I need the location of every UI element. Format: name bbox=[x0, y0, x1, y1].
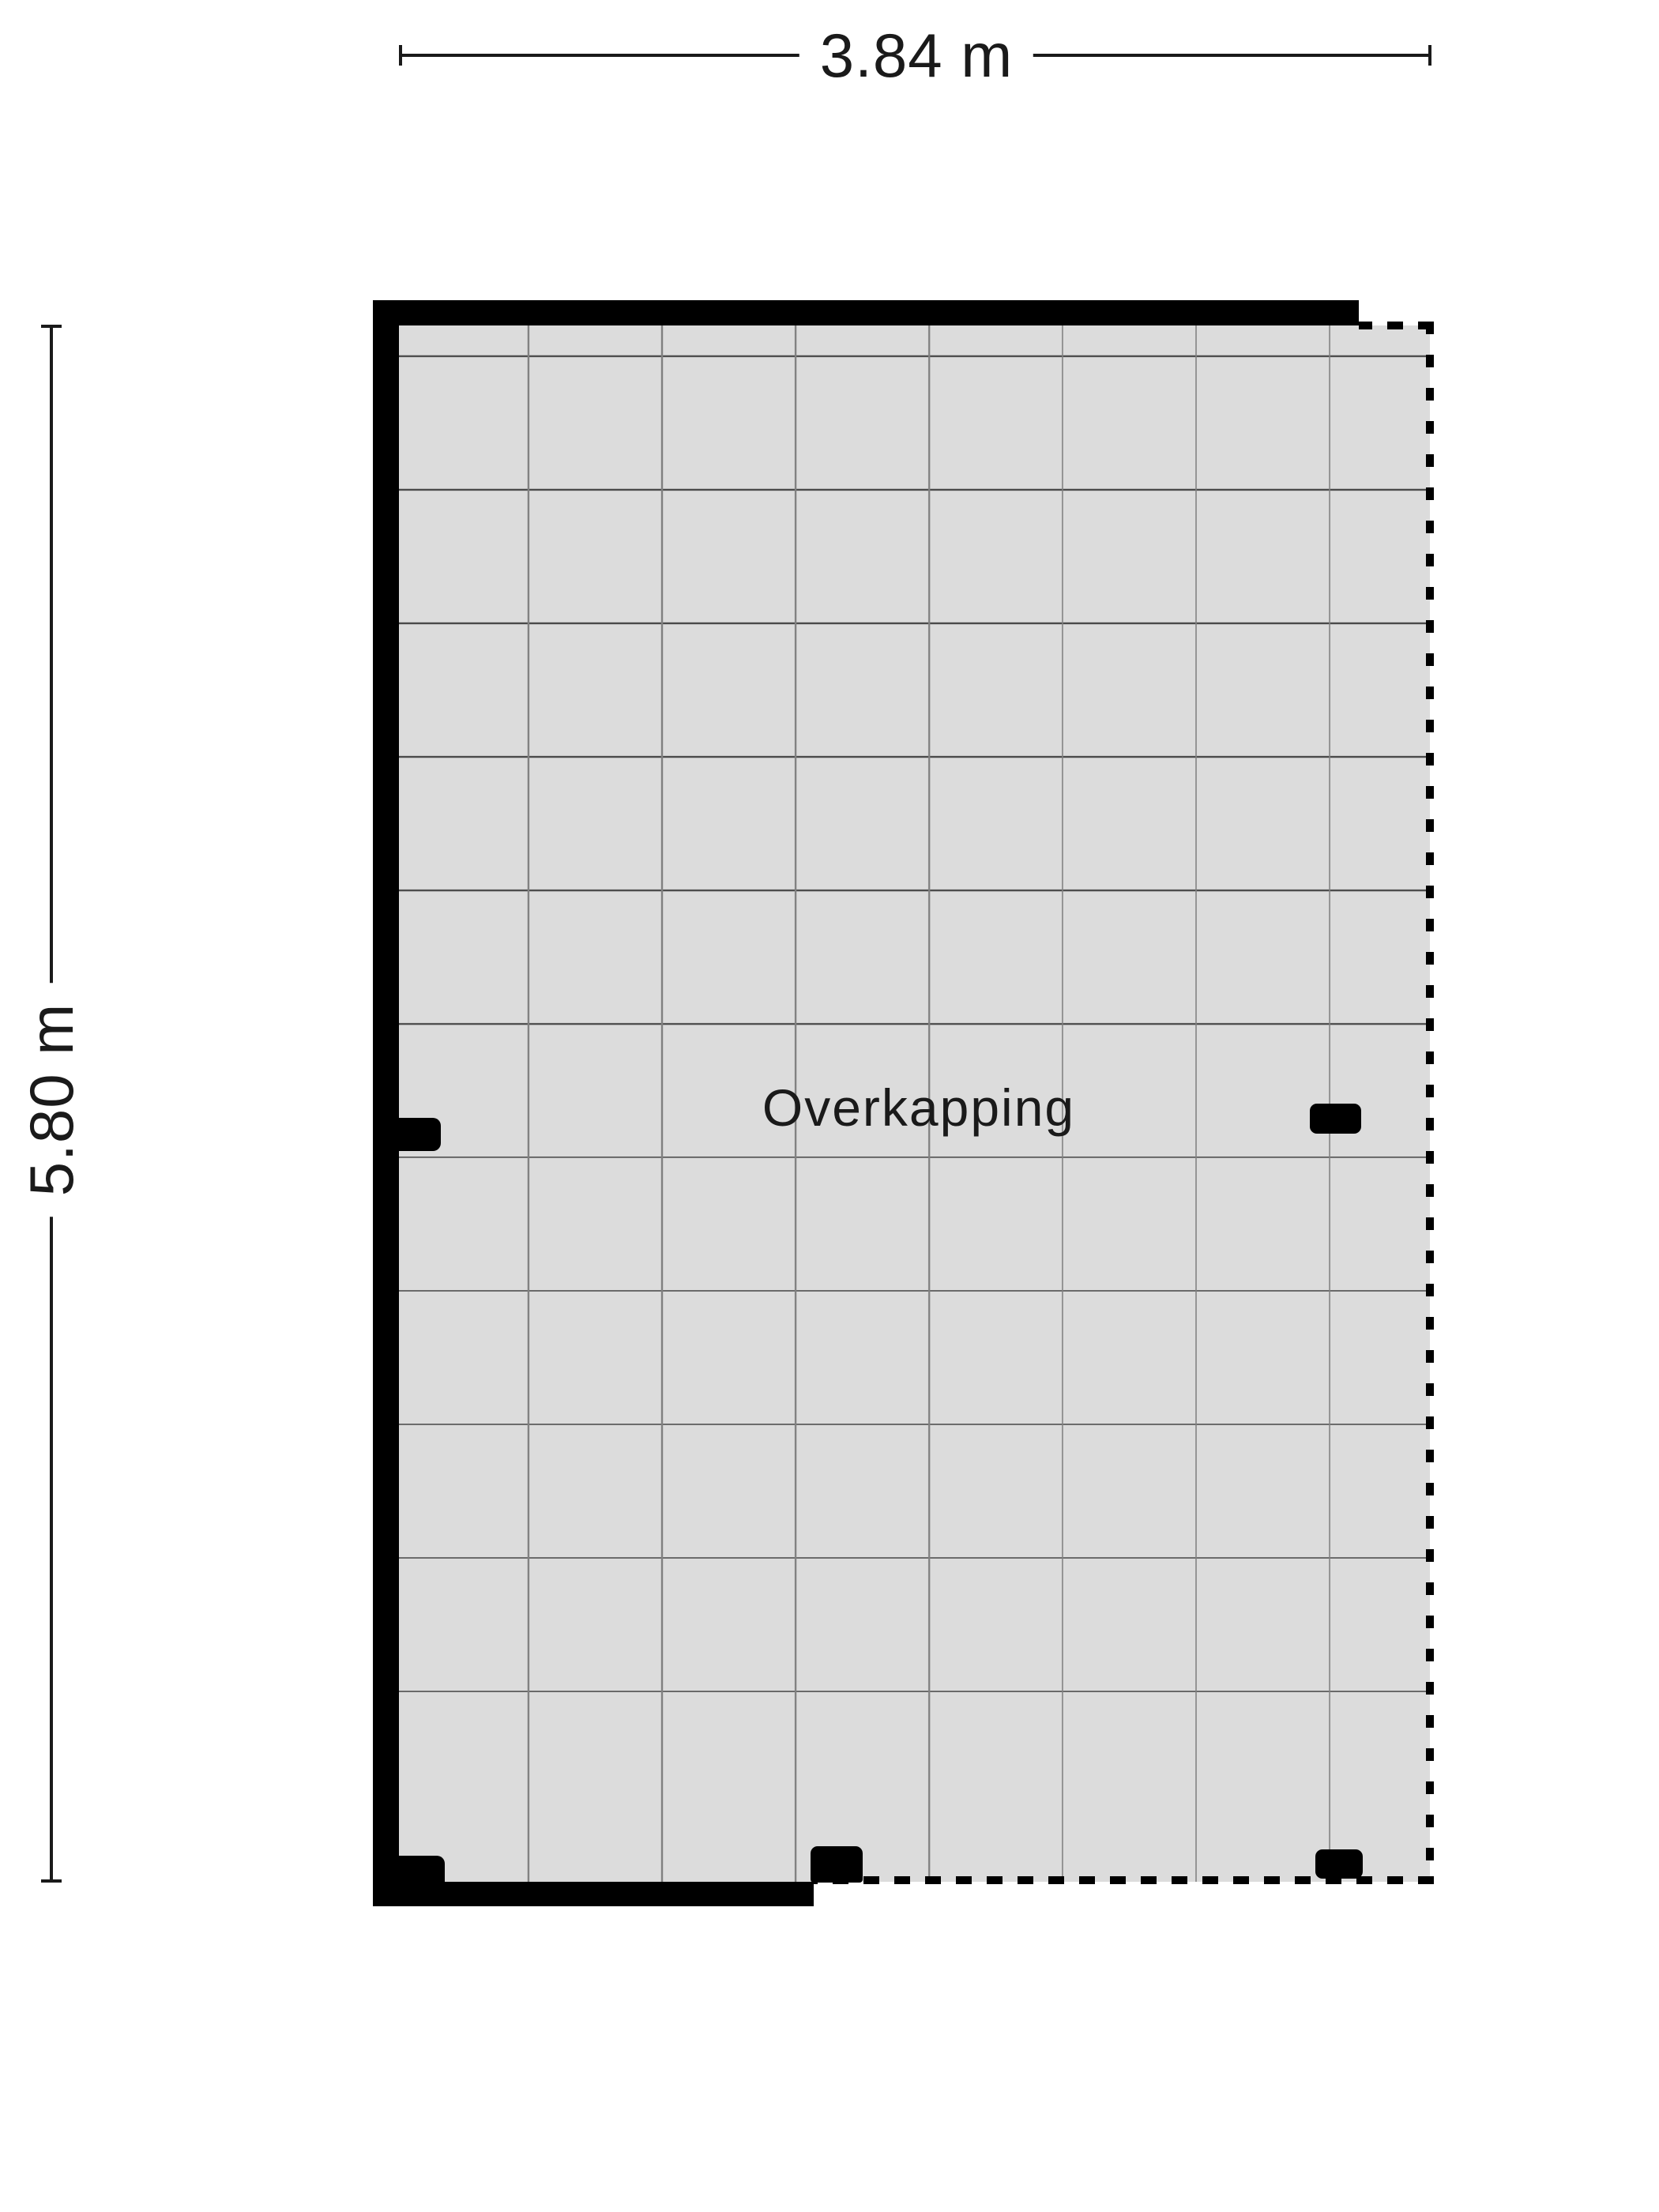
floorplan-page: { "floorplan": { "room_label": "Overkapp… bbox=[0, 0, 1659, 2212]
height-dimension-tick-bottom bbox=[41, 1879, 62, 1883]
wall-step-bottom-left bbox=[399, 1856, 445, 1883]
post-bottom-right bbox=[1315, 1849, 1363, 1879]
wall-left bbox=[373, 300, 399, 1906]
height-dimension-tick-top bbox=[41, 325, 62, 328]
post-left-middle bbox=[399, 1118, 441, 1151]
wall-bottom bbox=[373, 1882, 814, 1906]
open-side-dashed-right bbox=[1426, 322, 1434, 1884]
height-dimension-label: 5.80 m bbox=[16, 983, 87, 1217]
width-dimension-label: 3.84 m bbox=[799, 20, 1033, 91]
open-side-dashed-top-right bbox=[1359, 322, 1434, 329]
width-dimension-tick-right bbox=[1428, 45, 1431, 66]
room-label: Overkapping bbox=[762, 1082, 1075, 1134]
post-bottom-middle bbox=[811, 1846, 863, 1883]
width-dimension-tick-left bbox=[399, 45, 402, 66]
wall-top bbox=[373, 300, 1359, 325]
post-right-middle bbox=[1310, 1104, 1361, 1134]
